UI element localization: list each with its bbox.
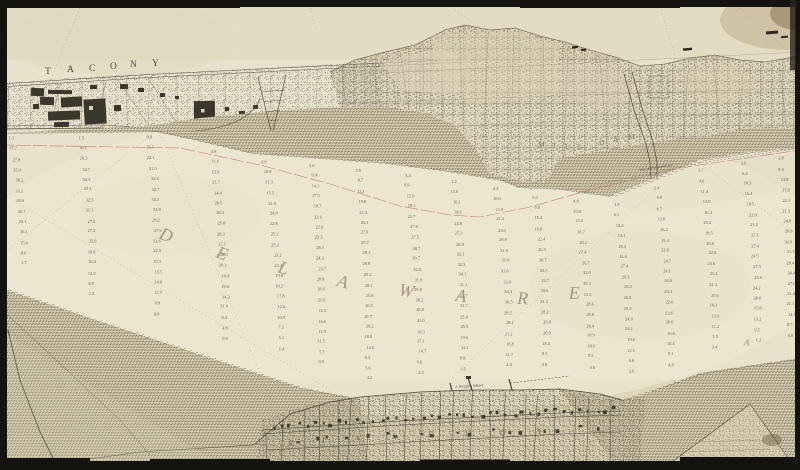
svg-text:24.6: 24.6 <box>664 278 672 283</box>
svg-text:20.2: 20.2 <box>579 240 587 245</box>
svg-text:20.8: 20.8 <box>706 241 714 246</box>
svg-text:21.7: 21.7 <box>408 214 416 219</box>
svg-text:12.0: 12.0 <box>88 271 96 276</box>
svg-text:21.1: 21.1 <box>787 301 795 306</box>
svg-text:31.1: 31.1 <box>86 208 94 213</box>
svg-text:17.7: 17.7 <box>9 146 17 151</box>
svg-text:5.1: 5.1 <box>279 335 285 340</box>
svg-text:19.8: 19.8 <box>222 273 230 278</box>
svg-text:31.3: 31.3 <box>584 292 592 297</box>
svg-text:24.3: 24.3 <box>316 255 324 260</box>
svg-text:16.1: 16.1 <box>20 229 28 234</box>
svg-text:5.7: 5.7 <box>319 350 325 355</box>
svg-text:34.1: 34.1 <box>459 272 467 277</box>
svg-text:E: E <box>391 432 397 441</box>
svg-text:32.0: 32.0 <box>583 270 591 275</box>
svg-text:19.2: 19.2 <box>275 284 283 289</box>
svg-text:33.2: 33.2 <box>15 189 23 194</box>
svg-text:21.6: 21.6 <box>318 298 326 303</box>
svg-text:30.5: 30.5 <box>505 300 513 305</box>
svg-text:11.0: 11.0 <box>220 304 228 309</box>
svg-text:M: M <box>628 132 635 141</box>
svg-text:2.5: 2.5 <box>418 370 424 375</box>
svg-text:33.7: 33.7 <box>541 278 549 283</box>
svg-text:32.0: 32.0 <box>153 207 161 212</box>
svg-text:21.3: 21.3 <box>709 282 717 287</box>
svg-text:3.5: 3.5 <box>461 367 467 372</box>
svg-text:27.5: 27.5 <box>411 235 419 240</box>
svg-text:M: M <box>538 140 545 149</box>
svg-text:24.4: 24.4 <box>214 190 222 195</box>
svg-text:30.7: 30.7 <box>412 256 420 261</box>
svg-text:21.7: 21.7 <box>212 180 220 185</box>
svg-text:2.4: 2.4 <box>506 362 512 367</box>
svg-text:16.6: 16.6 <box>318 319 326 324</box>
svg-text:17.0: 17.0 <box>782 187 790 192</box>
svg-text:32.3: 32.3 <box>458 262 466 267</box>
svg-text:2.0: 2.0 <box>741 161 747 166</box>
svg-text:9.9: 9.9 <box>404 183 410 188</box>
svg-text:32.6: 32.6 <box>151 176 159 181</box>
svg-text:1.7: 1.7 <box>21 260 27 265</box>
svg-text:17.8: 17.8 <box>277 294 285 299</box>
svg-text:27.4: 27.4 <box>621 264 629 269</box>
svg-text:17.5: 17.5 <box>312 193 320 198</box>
svg-text:20.7: 20.7 <box>364 314 372 319</box>
svg-text:L: L <box>577 142 582 151</box>
svg-text:R: R <box>516 288 529 308</box>
svg-text:E: E <box>567 283 580 303</box>
svg-text:20.6: 20.6 <box>666 320 674 325</box>
svg-text:30.4: 30.4 <box>788 271 796 276</box>
svg-text:R: R <box>287 439 293 448</box>
svg-text:25.8: 25.8 <box>218 220 226 225</box>
svg-text:30.8: 30.8 <box>784 239 792 244</box>
svg-text:19.0: 19.0 <box>359 199 367 204</box>
svg-text:15.4: 15.4 <box>535 215 543 220</box>
svg-text:19.3: 19.3 <box>417 329 425 334</box>
svg-text:21.0: 21.0 <box>268 201 276 206</box>
svg-text:15.5: 15.5 <box>267 190 275 195</box>
svg-text:34.3: 34.3 <box>504 289 512 294</box>
svg-text:5.0: 5.0 <box>356 168 362 173</box>
svg-text:6.9: 6.9 <box>657 195 663 200</box>
svg-text:14.3: 14.3 <box>618 233 626 238</box>
svg-text:5.6: 5.6 <box>365 365 371 370</box>
svg-text:11.7: 11.7 <box>506 352 514 357</box>
svg-text:26.3: 26.3 <box>538 247 546 252</box>
svg-text:13.8: 13.8 <box>781 177 789 182</box>
svg-text:10.3: 10.3 <box>744 181 752 186</box>
svg-text:15.5: 15.5 <box>155 270 163 275</box>
svg-text:24.8: 24.8 <box>454 221 462 226</box>
svg-text:27.3: 27.3 <box>455 230 463 235</box>
svg-text:31.9: 31.9 <box>500 248 508 253</box>
svg-text:33.6: 33.6 <box>541 288 549 293</box>
svg-text:22.1: 22.1 <box>147 155 155 160</box>
svg-text:29.3: 29.3 <box>583 281 591 286</box>
svg-text:3.4: 3.4 <box>405 173 411 178</box>
svg-text:11.0: 11.0 <box>451 189 459 194</box>
svg-text:13.9: 13.9 <box>712 314 720 319</box>
svg-text:O: O <box>110 62 117 72</box>
svg-text:12.9: 12.9 <box>154 290 162 295</box>
svg-text:27.5: 27.5 <box>88 219 96 224</box>
svg-text:29.1: 29.1 <box>363 250 371 255</box>
svg-text:28.2: 28.2 <box>152 217 160 222</box>
svg-text:8.8: 8.8 <box>155 301 161 306</box>
svg-text:24.8: 24.8 <box>784 219 792 224</box>
svg-text:1.1: 1.1 <box>9 136 15 141</box>
svg-text:26.5: 26.5 <box>624 284 632 289</box>
svg-text:25.3: 25.3 <box>624 306 632 311</box>
svg-text:23.6: 23.6 <box>314 214 322 219</box>
svg-text:8.7: 8.7 <box>358 178 364 183</box>
svg-text:10.0: 10.0 <box>573 209 581 214</box>
svg-text:14.2: 14.2 <box>222 294 230 299</box>
svg-text:16.4: 16.4 <box>704 210 712 215</box>
svg-text:19.4: 19.4 <box>661 238 669 243</box>
svg-text:22.0: 22.0 <box>666 300 674 305</box>
svg-text:16.7: 16.7 <box>146 144 154 149</box>
svg-text:2.6: 2.6 <box>629 369 635 374</box>
svg-text:28.2: 28.2 <box>541 310 549 315</box>
svg-text:2.4: 2.4 <box>654 186 660 191</box>
svg-text:20.0: 20.0 <box>754 296 762 301</box>
svg-text:29.8: 29.8 <box>363 261 371 266</box>
svg-text:14.0: 14.0 <box>367 345 375 350</box>
svg-text:26.8: 26.8 <box>624 295 632 300</box>
svg-text:26.1: 26.1 <box>361 220 369 225</box>
svg-text:10.9: 10.9 <box>277 315 285 320</box>
svg-text:11.3: 11.3 <box>265 180 273 185</box>
svg-text:22.1: 22.1 <box>783 198 791 203</box>
svg-text:9.3: 9.3 <box>778 167 784 172</box>
svg-text:4.8: 4.8 <box>668 362 674 367</box>
svg-text:27.4: 27.4 <box>579 250 587 255</box>
svg-text:28.6: 28.6 <box>16 198 24 203</box>
svg-text:4.3: 4.3 <box>493 186 499 191</box>
svg-text:15.8: 15.8 <box>754 306 762 311</box>
svg-text:32.7: 32.7 <box>152 187 160 192</box>
svg-text:5.0: 5.0 <box>532 195 538 200</box>
svg-text:28.5: 28.5 <box>215 200 223 205</box>
svg-text:19.0: 19.0 <box>221 284 229 289</box>
svg-text:1.2: 1.2 <box>451 179 457 184</box>
svg-text:0.8: 0.8 <box>590 365 596 370</box>
svg-text:29.4: 29.4 <box>787 260 795 265</box>
svg-text:13.4: 13.4 <box>616 223 624 228</box>
svg-text:1.8: 1.8 <box>614 202 620 207</box>
svg-text:11.0: 11.0 <box>212 159 220 164</box>
svg-text:34.3: 34.3 <box>83 177 91 182</box>
svg-text:28.5: 28.5 <box>504 310 512 315</box>
svg-text:0.8: 0.8 <box>154 311 160 316</box>
svg-text:19.8: 19.8 <box>535 226 543 231</box>
svg-text:23.3: 23.3 <box>315 235 323 240</box>
svg-text:27.6: 27.6 <box>410 224 418 229</box>
svg-text:16.6: 16.6 <box>667 331 675 336</box>
svg-text:3.8: 3.8 <box>778 156 784 161</box>
svg-text:31.0: 31.0 <box>502 258 510 263</box>
svg-text:21.4: 21.4 <box>787 291 795 296</box>
svg-text:A: A <box>613 135 619 144</box>
svg-text:21.3: 21.3 <box>782 208 790 213</box>
svg-text:5.5: 5.5 <box>713 334 719 339</box>
svg-text:1.2: 1.2 <box>756 338 762 343</box>
svg-text:29.3: 29.3 <box>622 274 630 279</box>
svg-text:4.8: 4.8 <box>573 198 579 203</box>
svg-text:22.8: 22.8 <box>270 221 278 226</box>
svg-text:28.1: 28.1 <box>365 283 373 288</box>
svg-text:0.8: 0.8 <box>147 135 153 140</box>
svg-text:26.3: 26.3 <box>80 156 88 161</box>
svg-text:C: C <box>89 64 95 74</box>
svg-text:18.5: 18.5 <box>705 231 713 236</box>
svg-text:11.2: 11.2 <box>712 324 720 329</box>
svg-text:O: O <box>500 428 506 437</box>
svg-text:16.2: 16.2 <box>660 227 668 232</box>
svg-text:24.2: 24.2 <box>753 286 761 291</box>
svg-text:21.2: 21.2 <box>496 216 504 221</box>
svg-text:1.1: 1.1 <box>698 168 704 173</box>
svg-text:23.2: 23.2 <box>274 253 282 258</box>
svg-text:30.2: 30.2 <box>416 298 424 303</box>
svg-text:10.0: 10.0 <box>493 196 501 201</box>
svg-text:19.0: 19.0 <box>627 337 635 342</box>
svg-text:22.5: 22.5 <box>153 248 161 253</box>
svg-text:26.3: 26.3 <box>217 232 225 237</box>
svg-text:18.9: 18.9 <box>587 333 595 338</box>
svg-text:18.2: 18.2 <box>542 341 550 346</box>
svg-text:14.1: 14.1 <box>461 345 469 350</box>
svg-text:22.0: 22.0 <box>417 318 425 323</box>
svg-text:18.7: 18.7 <box>577 229 585 234</box>
svg-text:4.8: 4.8 <box>222 326 228 331</box>
svg-text:25.0: 25.0 <box>460 315 468 320</box>
svg-text:3.4: 3.4 <box>712 345 718 350</box>
svg-text:27.4: 27.4 <box>751 244 759 249</box>
svg-text:30.2: 30.2 <box>16 178 24 183</box>
svg-text:3.3: 3.3 <box>89 291 95 296</box>
svg-text:13.1: 13.1 <box>357 189 365 194</box>
svg-text:D: D <box>599 138 605 147</box>
svg-text:26.8: 26.8 <box>543 320 551 325</box>
svg-text:12.6: 12.6 <box>278 304 286 309</box>
svg-text:24.1: 24.1 <box>625 326 633 331</box>
svg-text:30.7: 30.7 <box>539 257 547 262</box>
svg-text:3.6: 3.6 <box>309 163 315 168</box>
svg-text:6.1: 6.1 <box>614 212 620 217</box>
svg-text:28.3: 28.3 <box>216 210 224 215</box>
svg-text:23.6: 23.6 <box>754 275 762 280</box>
svg-text:9.5: 9.5 <box>754 327 760 332</box>
svg-text:8.4: 8.4 <box>222 315 228 320</box>
svg-text:24.3: 24.3 <box>664 289 672 294</box>
svg-text:25.0: 25.0 <box>89 239 97 244</box>
svg-text:19.5: 19.5 <box>747 201 755 206</box>
svg-text:26.9: 26.9 <box>785 228 793 233</box>
svg-text:29.2: 29.2 <box>364 272 372 277</box>
svg-text:8.7: 8.7 <box>657 207 663 212</box>
svg-text:T: T <box>45 67 51 77</box>
svg-text:4.6: 4.6 <box>699 179 705 184</box>
svg-text:9.5: 9.5 <box>588 353 594 358</box>
svg-text:28.6: 28.6 <box>586 301 594 306</box>
svg-text:8.7: 8.7 <box>787 322 793 327</box>
svg-text:11.5: 11.5 <box>317 339 325 344</box>
svg-text:16.1: 16.1 <box>453 199 461 204</box>
svg-text:9.6: 9.6 <box>417 360 423 365</box>
svg-text:10.8: 10.8 <box>264 169 272 174</box>
svg-text:23.1: 23.1 <box>19 219 27 224</box>
svg-text:9.1: 9.1 <box>668 351 674 356</box>
svg-text:24.0: 24.0 <box>270 210 278 215</box>
svg-text:30.7: 30.7 <box>413 246 421 251</box>
svg-text:21.2: 21.2 <box>750 222 758 227</box>
svg-text:N: N <box>535 427 542 436</box>
svg-text:28.8: 28.8 <box>499 237 507 242</box>
svg-text:0.8: 0.8 <box>261 160 267 165</box>
svg-text:16.3: 16.3 <box>710 302 718 307</box>
svg-text:33.5: 33.5 <box>540 268 548 273</box>
svg-text:A: A <box>67 65 74 75</box>
svg-text:32.4: 32.4 <box>503 279 511 284</box>
svg-text:13.0: 13.0 <box>658 216 666 221</box>
svg-text:0.8: 0.8 <box>788 333 794 338</box>
svg-text:7.2: 7.2 <box>278 325 284 330</box>
svg-text:24.9: 24.9 <box>625 317 633 322</box>
svg-text:9.0: 9.0 <box>312 173 318 178</box>
svg-text:26.7: 26.7 <box>582 260 590 265</box>
svg-text:32.0: 32.0 <box>413 267 421 272</box>
svg-text:T: T <box>464 429 469 438</box>
svg-text:28.1: 28.1 <box>506 320 514 325</box>
svg-text:0.8: 0.8 <box>319 359 325 364</box>
svg-text:27.8: 27.8 <box>13 157 21 162</box>
svg-text:35.0: 35.0 <box>13 167 21 172</box>
svg-text:10.4: 10.4 <box>667 341 675 346</box>
svg-text:26.1: 26.1 <box>316 245 324 250</box>
svg-text:Y: Y <box>152 59 159 69</box>
svg-text:19.6: 19.6 <box>460 335 468 340</box>
svg-text:13.5: 13.5 <box>575 218 583 223</box>
svg-text:23.6: 23.6 <box>708 261 716 266</box>
svg-text:20.6: 20.6 <box>711 293 719 298</box>
svg-text:1.4: 1.4 <box>279 347 285 352</box>
svg-text:25.2: 25.2 <box>271 243 279 248</box>
svg-text:24.1: 24.1 <box>663 269 671 274</box>
svg-text:22.8: 22.8 <box>749 212 757 217</box>
svg-text:33.6: 33.6 <box>501 269 509 274</box>
svg-text:24.5: 24.5 <box>751 254 759 259</box>
svg-text:18.0: 18.0 <box>365 334 373 339</box>
svg-text:6.8: 6.8 <box>629 358 635 363</box>
svg-text:15.9: 15.9 <box>212 169 220 174</box>
svg-text:19.1: 19.1 <box>408 203 416 208</box>
svg-text:13.2: 13.2 <box>754 316 762 321</box>
svg-text:I: I <box>321 436 325 445</box>
svg-text:1.5: 1.5 <box>79 136 85 141</box>
svg-text:25.5: 25.5 <box>461 324 469 329</box>
svg-text:27.1: 27.1 <box>751 232 759 237</box>
svg-text:16.4: 16.4 <box>745 191 753 196</box>
svg-text:26.7: 26.7 <box>18 209 26 214</box>
svg-text:16.1: 16.1 <box>79 145 87 150</box>
svg-text:4.8: 4.8 <box>211 149 217 154</box>
svg-text:8.8: 8.8 <box>88 281 94 286</box>
svg-text:31.8: 31.8 <box>415 277 423 282</box>
svg-text:R: R <box>427 430 433 439</box>
svg-text:20.2: 20.2 <box>366 324 374 329</box>
svg-text:8.9: 8.9 <box>460 356 466 361</box>
svg-text:27.3: 27.3 <box>753 264 761 269</box>
svg-text:4.2: 4.2 <box>367 375 373 380</box>
svg-text:32.1: 32.1 <box>457 252 465 257</box>
svg-text:31.5: 31.5 <box>787 249 795 254</box>
svg-text:4.8: 4.8 <box>542 362 548 367</box>
svg-text:22.8: 22.8 <box>661 248 669 253</box>
svg-text:14.1: 14.1 <box>312 183 320 188</box>
svg-text:15.0: 15.0 <box>20 241 28 246</box>
svg-text:22.8: 22.8 <box>709 250 717 255</box>
svg-text:31.3: 31.3 <box>540 299 548 304</box>
svg-text:20.4: 20.4 <box>703 220 711 225</box>
svg-text:20.9: 20.9 <box>317 276 325 281</box>
svg-text:23.6: 23.6 <box>665 311 673 316</box>
svg-text:6.4: 6.4 <box>742 171 748 176</box>
svg-text:16.4: 16.4 <box>88 259 96 264</box>
svg-text:25.7: 25.7 <box>361 240 369 245</box>
svg-text:22.4: 22.4 <box>538 236 546 241</box>
svg-text:27.3: 27.3 <box>88 228 96 233</box>
svg-text:18.6: 18.6 <box>317 287 325 292</box>
svg-text:N: N <box>130 60 137 70</box>
svg-text:32.5: 32.5 <box>86 198 94 203</box>
svg-text:33.3: 33.3 <box>84 186 92 191</box>
svg-text:20.9: 20.9 <box>543 331 551 336</box>
svg-text:14.7: 14.7 <box>419 349 427 354</box>
svg-text:21.5: 21.5 <box>359 210 367 215</box>
svg-text:21.2: 21.2 <box>505 332 513 337</box>
svg-text:0.8: 0.8 <box>222 336 228 341</box>
svg-text:18.8: 18.8 <box>88 250 96 255</box>
svg-text:26.4: 26.4 <box>586 323 594 328</box>
svg-text:28.8: 28.8 <box>416 307 424 312</box>
svg-text:L: L <box>565 142 570 151</box>
svg-text:27.0: 27.0 <box>361 230 369 235</box>
svg-text:14.9: 14.9 <box>703 199 711 204</box>
svg-text:18.0: 18.0 <box>588 344 596 349</box>
svg-text:15.9: 15.9 <box>407 193 415 198</box>
svg-text:34.7: 34.7 <box>82 167 90 172</box>
svg-text:19.3: 19.3 <box>153 259 161 264</box>
svg-text:23.0: 23.0 <box>498 228 506 233</box>
svg-text:11.9: 11.9 <box>318 329 326 334</box>
svg-text:12.5: 12.5 <box>627 348 635 353</box>
svg-text:11.4: 11.4 <box>700 189 708 194</box>
svg-text:16.8: 16.8 <box>506 341 514 346</box>
svg-text:23.7: 23.7 <box>318 267 326 272</box>
svg-text:25.8: 25.8 <box>366 293 374 298</box>
svg-text:24.7: 24.7 <box>663 258 671 263</box>
svg-text:29.8: 29.8 <box>414 287 422 292</box>
svg-text:28.0: 28.0 <box>456 242 464 247</box>
svg-text:15.3: 15.3 <box>319 308 327 313</box>
svg-text:19.7: 19.7 <box>314 204 322 209</box>
svg-text:25.1: 25.1 <box>271 232 279 237</box>
svg-text:18.6: 18.6 <box>454 209 462 214</box>
